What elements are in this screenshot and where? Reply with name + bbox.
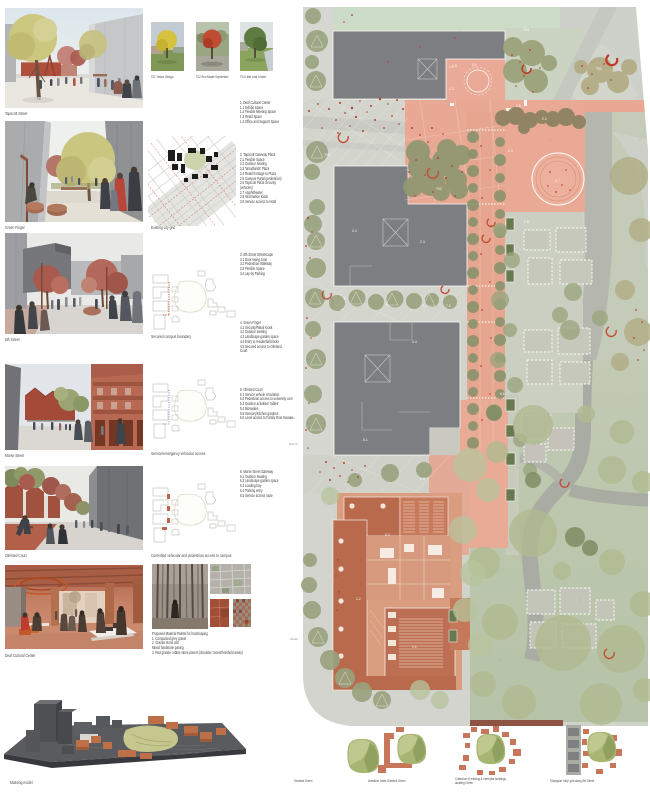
svg-text:4.4: 4.4 — [412, 340, 417, 344]
svg-text:1.1: 1.1 — [472, 63, 477, 67]
svg-text:2.8: 2.8 — [524, 220, 529, 224]
svg-text:1.1: 1.1 — [412, 645, 417, 649]
svg-text:T02: T02 — [436, 187, 442, 191]
svg-text:T01: T01 — [596, 67, 602, 71]
svg-text:2.5: 2.5 — [516, 104, 521, 108]
svg-text:2.3: 2.3 — [508, 149, 513, 153]
svg-text:T01: T01 — [324, 153, 330, 157]
svg-text:T03: T03 — [523, 28, 529, 32]
svg-text:6.3: 6.3 — [420, 477, 425, 481]
svg-text:6.2: 6.2 — [385, 533, 390, 537]
svg-text:1.3: 1.3 — [449, 87, 454, 91]
svg-text:2.7: 2.7 — [555, 179, 560, 183]
svg-text:2.2: 2.2 — [542, 117, 547, 121]
svg-text:7.0: 7.0 — [446, 304, 451, 308]
svg-text:1.1: 1.1 — [449, 65, 454, 69]
svg-text:2.4: 2.4 — [420, 240, 425, 244]
svg-text:6.6: 6.6 — [500, 392, 505, 396]
svg-text:2.4: 2.4 — [352, 229, 357, 233]
svg-text:5.1: 5.1 — [363, 438, 368, 442]
svg-text:1.2: 1.2 — [356, 597, 361, 601]
